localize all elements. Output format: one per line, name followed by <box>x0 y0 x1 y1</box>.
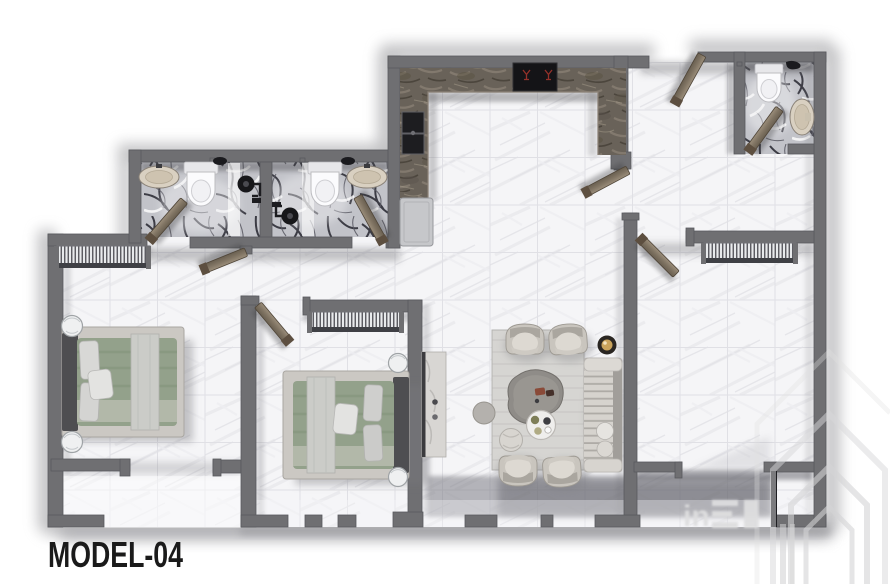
svg-text:MODEL-04: MODEL-04 <box>48 534 183 575</box>
svg-text:in: in <box>683 500 710 533</box>
